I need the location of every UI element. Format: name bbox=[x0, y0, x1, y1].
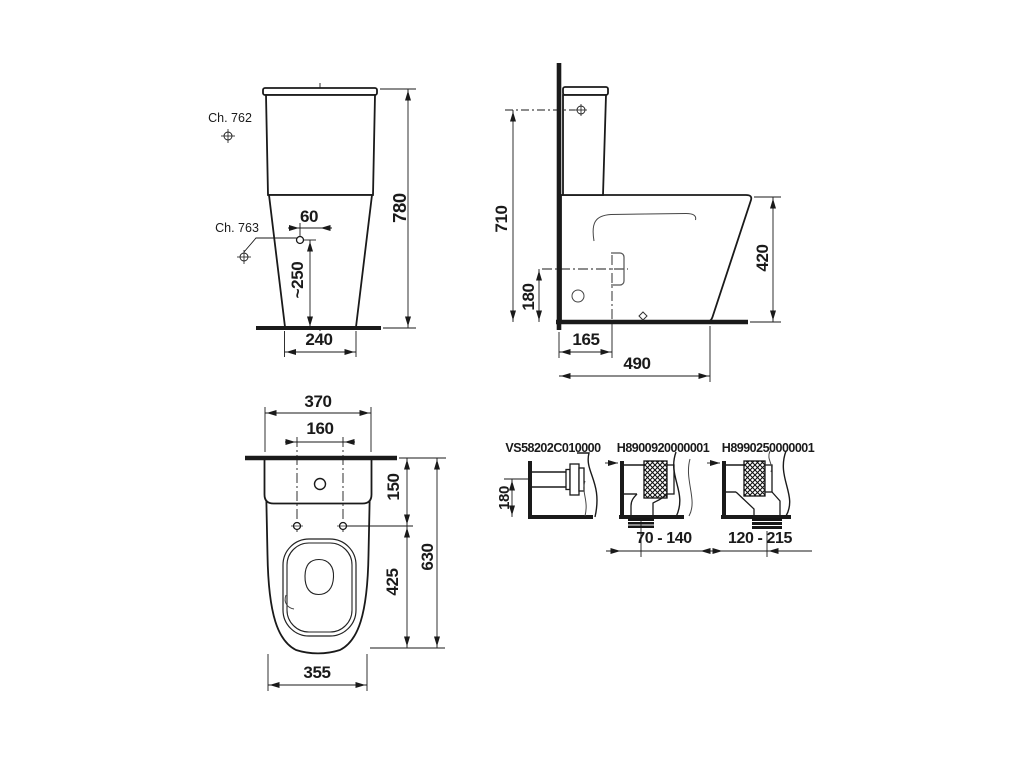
dim-780-label: 780 bbox=[389, 193, 410, 223]
background bbox=[0, 0, 1024, 768]
cistern-body bbox=[266, 95, 375, 195]
dim-370-label: 370 bbox=[304, 392, 331, 411]
dim-250-label: ~250 bbox=[288, 262, 307, 299]
dim-120-215-label: 120 - 215 bbox=[728, 530, 793, 547]
dim-180-side-label: 180 bbox=[519, 283, 538, 310]
flush-button bbox=[315, 479, 326, 490]
dim-425-label: 425 bbox=[383, 568, 402, 595]
dim-490-label: 490 bbox=[623, 354, 650, 373]
detail3-outlet-stub bbox=[752, 518, 782, 529]
dim-150-label: 150 bbox=[384, 473, 403, 500]
ch763-label: Ch. 763 bbox=[215, 221, 259, 235]
dim-710-label: 710 bbox=[492, 205, 511, 232]
dim-160-label: 160 bbox=[306, 419, 333, 438]
technical-drawing-page: Ch. 762 Ch. 763 60 ~250 bbox=[0, 0, 1024, 768]
dim-180-detail1-label: 180 bbox=[496, 486, 513, 510]
dim-355-label: 355 bbox=[303, 663, 330, 682]
dim-420-label: 420 bbox=[753, 244, 772, 271]
detail2-code-label: H8900920000001 bbox=[617, 441, 710, 455]
drawing-canvas: Ch. 762 Ch. 763 60 ~250 bbox=[0, 0, 1024, 768]
side-cistern-lid bbox=[563, 87, 608, 95]
detail3-code-label: H8990250000001 bbox=[722, 441, 815, 455]
dim-240-label: 240 bbox=[305, 330, 332, 349]
ch762-label: Ch. 762 bbox=[208, 111, 252, 125]
dim-165-label: 165 bbox=[572, 330, 599, 349]
dim-60-label: 60 bbox=[300, 207, 318, 226]
dim-630-label: 630 bbox=[418, 543, 437, 570]
cistern-lid bbox=[263, 88, 377, 95]
pedestal bbox=[269, 195, 372, 327]
dim-70-140-label: 70 - 140 bbox=[636, 530, 692, 547]
fixing-hole bbox=[297, 237, 304, 244]
